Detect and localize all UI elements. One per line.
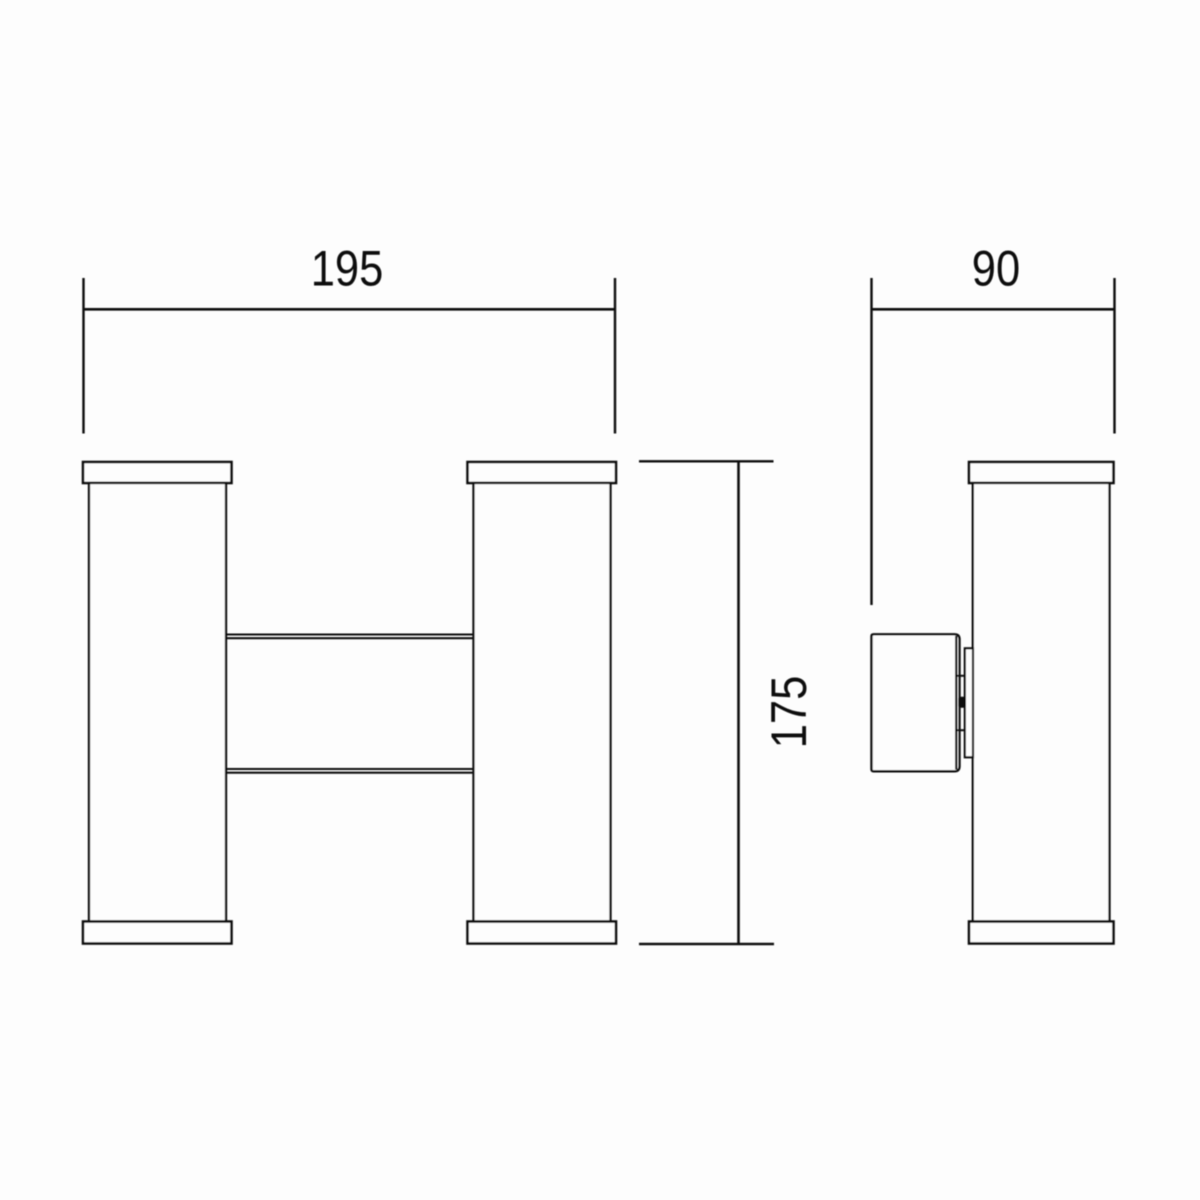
svg-text:90: 90: [972, 241, 1020, 296]
svg-text:195: 195: [311, 241, 384, 296]
svg-text:175: 175: [761, 676, 816, 749]
